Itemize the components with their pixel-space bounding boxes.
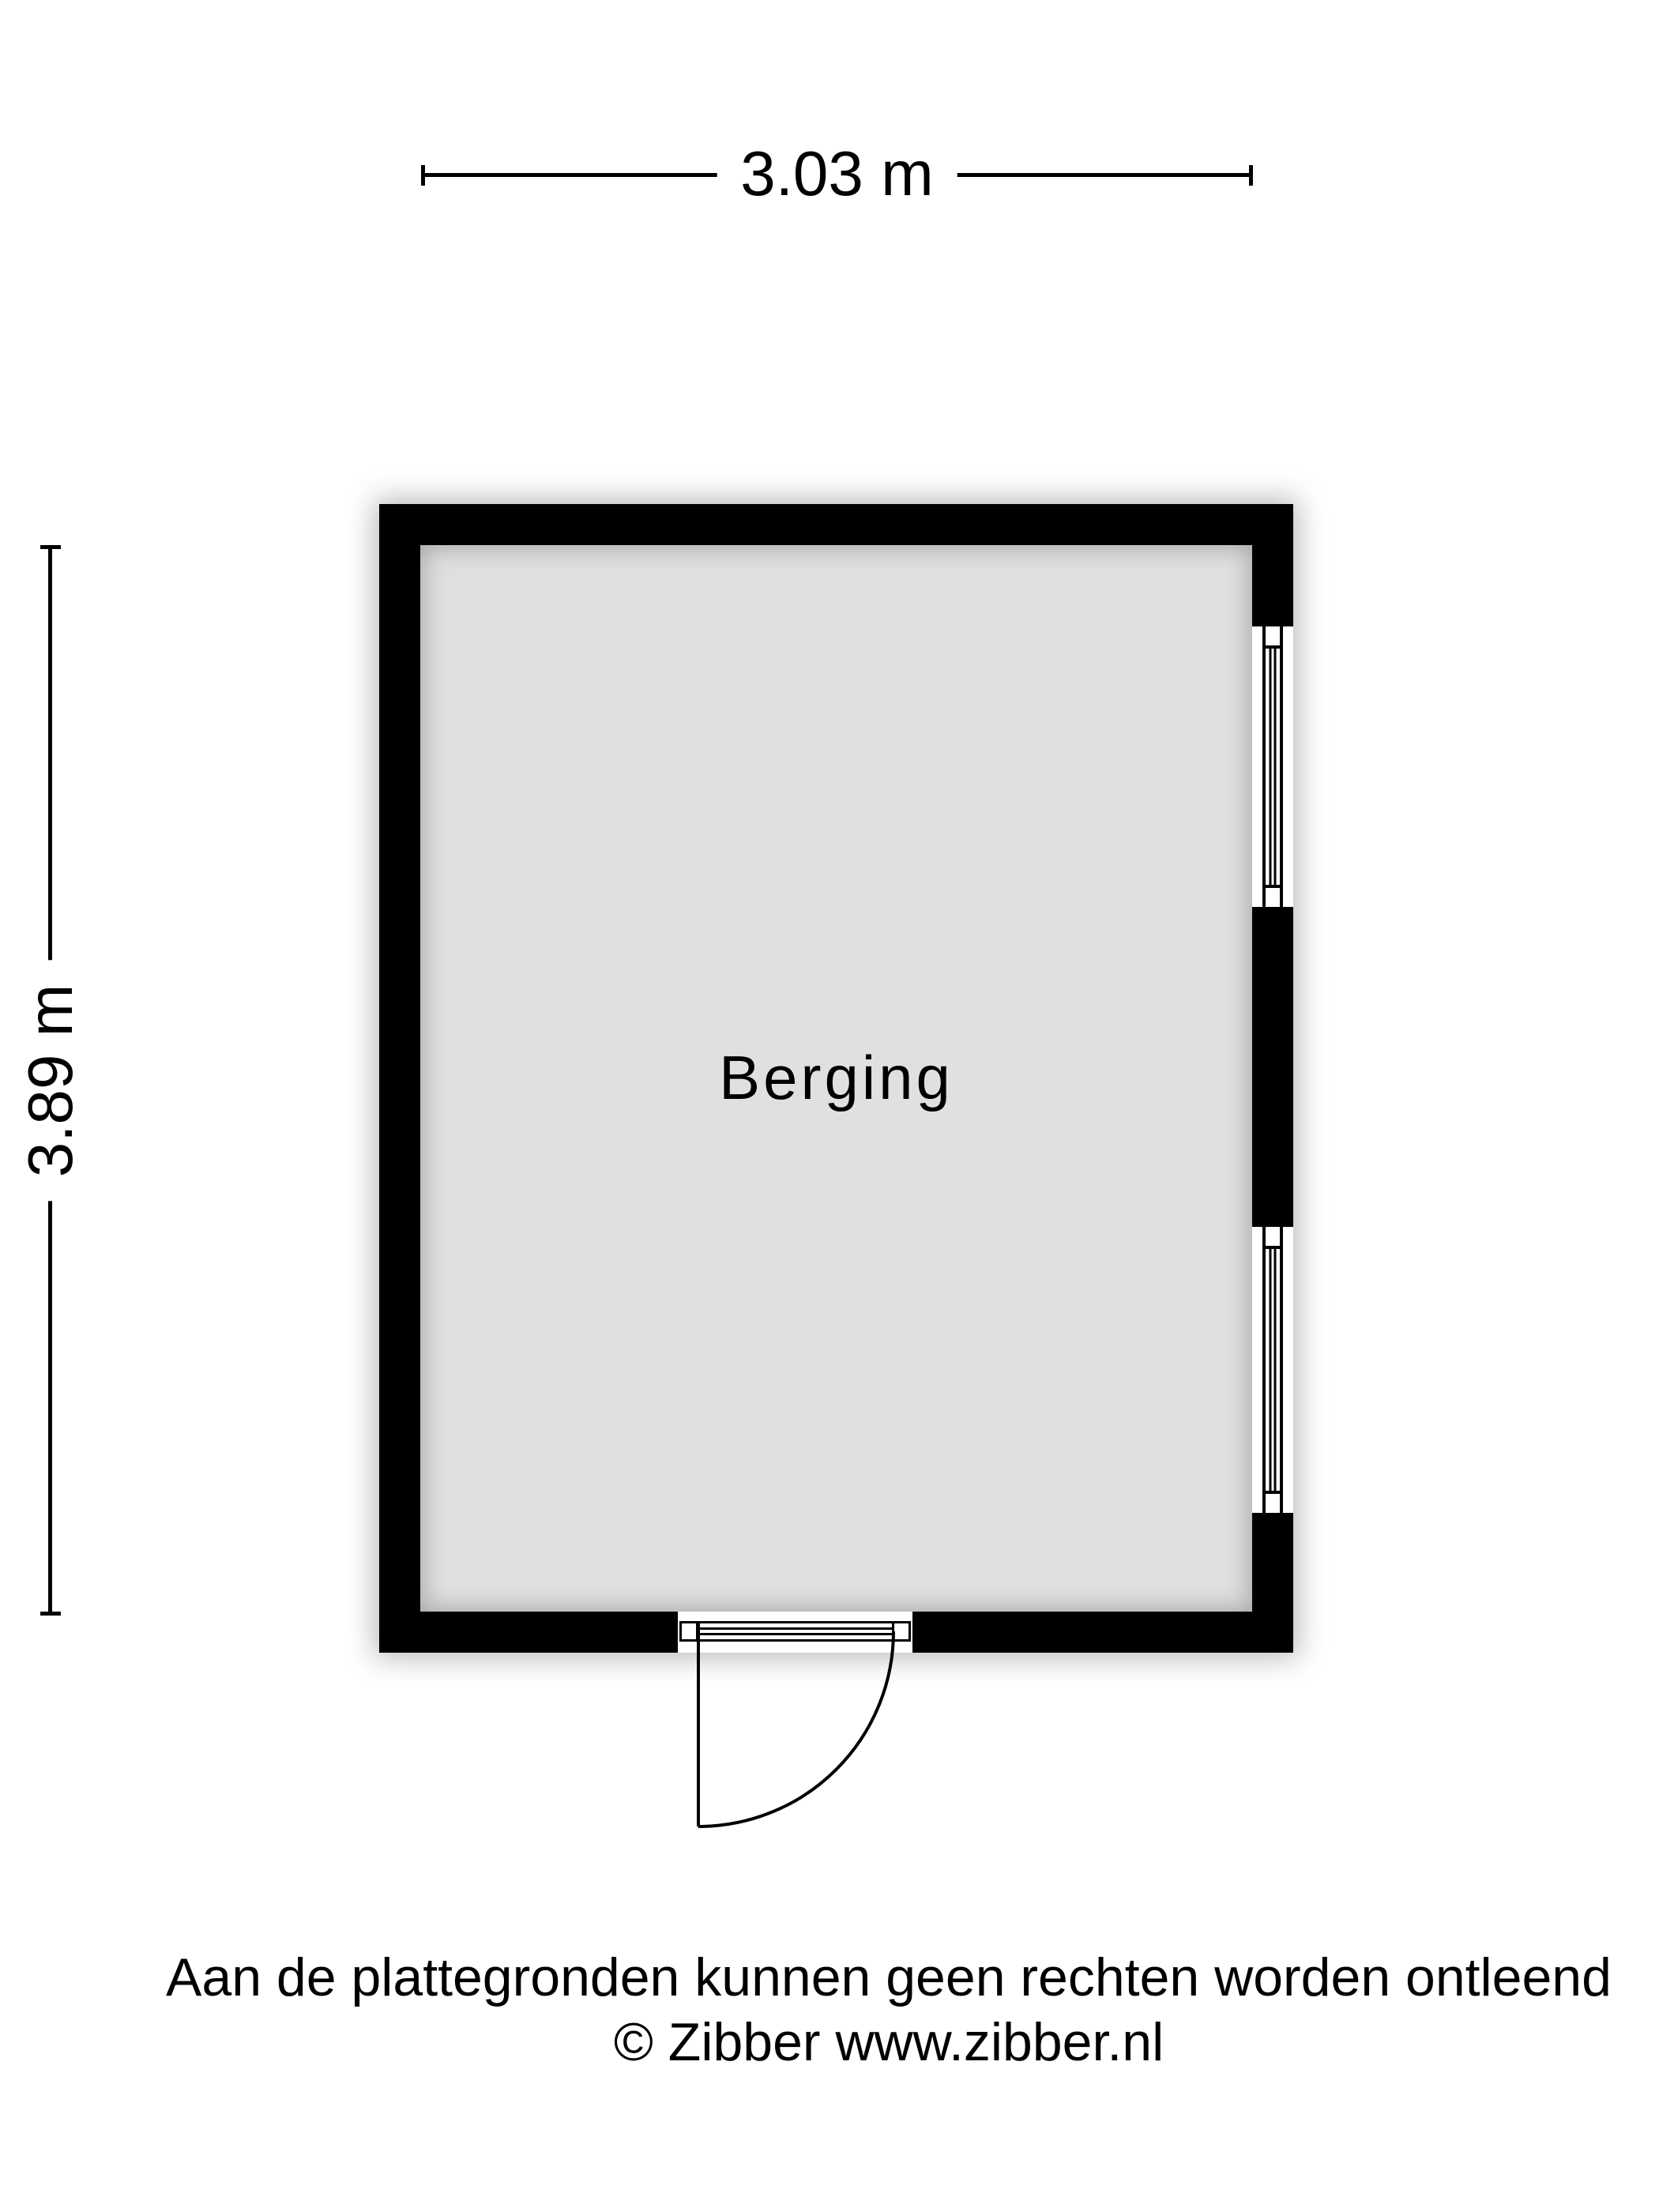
height-dimension-label: 3.89 m [14,960,87,1201]
footer: Aan de plattegronden kunnen geen rechten… [99,1945,1659,2075]
width-dimension-label: 3.03 m [717,137,957,210]
window-frame [1262,626,1283,907]
window-glass [1270,1249,1277,1491]
window-frame [1262,1227,1283,1513]
dimension-tick-right [1249,165,1253,186]
window-symbol-bottom [1252,1227,1293,1513]
room-label: Berging [420,1044,1252,1112]
copyright-text: © Zibber www.zibber.nl [99,2010,1659,2075]
floorplan-walls: Berging [379,504,1293,1653]
dimension-line-width: 3.03 m [421,155,1253,196]
disclaimer-text: Aan de plattegronden kunnen geen rechten… [99,1945,1659,2010]
dimension-tick-bottom [40,1612,61,1616]
dimension-line-height: 3.89 m [30,545,71,1616]
window-glass [1270,649,1277,885]
window-symbol-top [1252,626,1293,907]
door-swing-arc [678,1619,915,1841]
room-floor: Berging [420,545,1252,1612]
floorplan-page: 3.03 m 3.89 m Berging [0,0,1659,2212]
